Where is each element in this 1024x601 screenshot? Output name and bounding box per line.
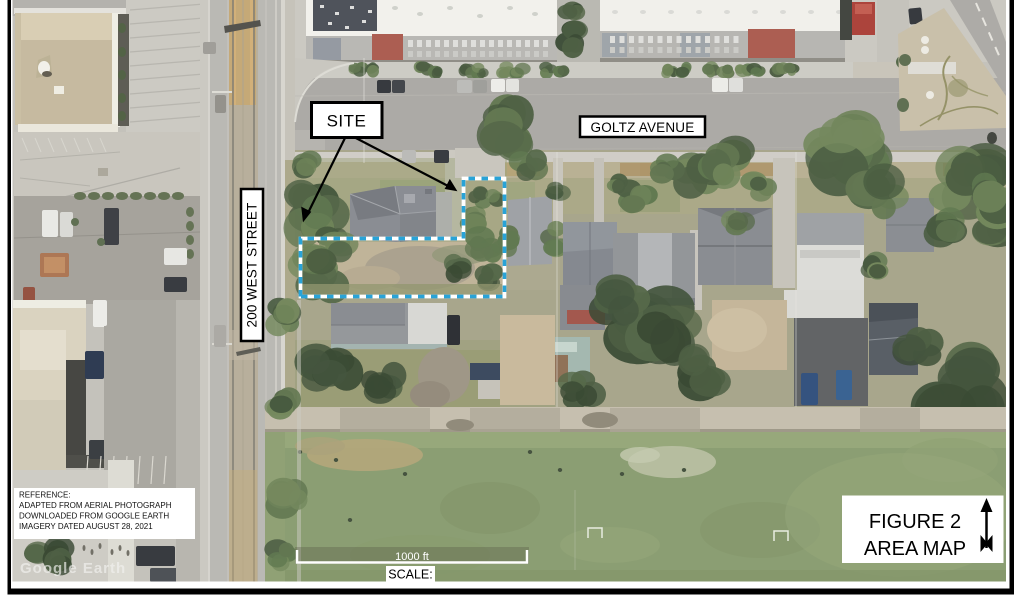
svg-text:1000 ft: 1000 ft — [395, 551, 429, 563]
svg-text:AREA MAP: AREA MAP — [864, 538, 966, 560]
svg-text:GOLTZ AVENUE: GOLTZ AVENUE — [591, 120, 695, 135]
svg-text:200 WEST STREET: 200 WEST STREET — [245, 202, 260, 327]
svg-text:SITE: SITE — [327, 112, 367, 131]
svg-text:FIGURE 2: FIGURE 2 — [869, 511, 961, 533]
svg-text:IMAGERY DATED AUGUST 28, 2021: IMAGERY DATED AUGUST 28, 2021 — [19, 522, 153, 531]
svg-text:DOWNLOADED FROM GOOGLE EARTH: DOWNLOADED FROM GOOGLE EARTH — [19, 512, 169, 521]
svg-text:REFERENCE:: REFERENCE: — [19, 491, 71, 500]
svg-text:Google Earth: Google Earth — [20, 560, 126, 577]
svg-text:ADAPTED FROM AERIAL PHOTOGRAPH: ADAPTED FROM AERIAL PHOTOGRAPH — [19, 501, 172, 510]
svg-text:SCALE:: SCALE: — [388, 568, 432, 582]
